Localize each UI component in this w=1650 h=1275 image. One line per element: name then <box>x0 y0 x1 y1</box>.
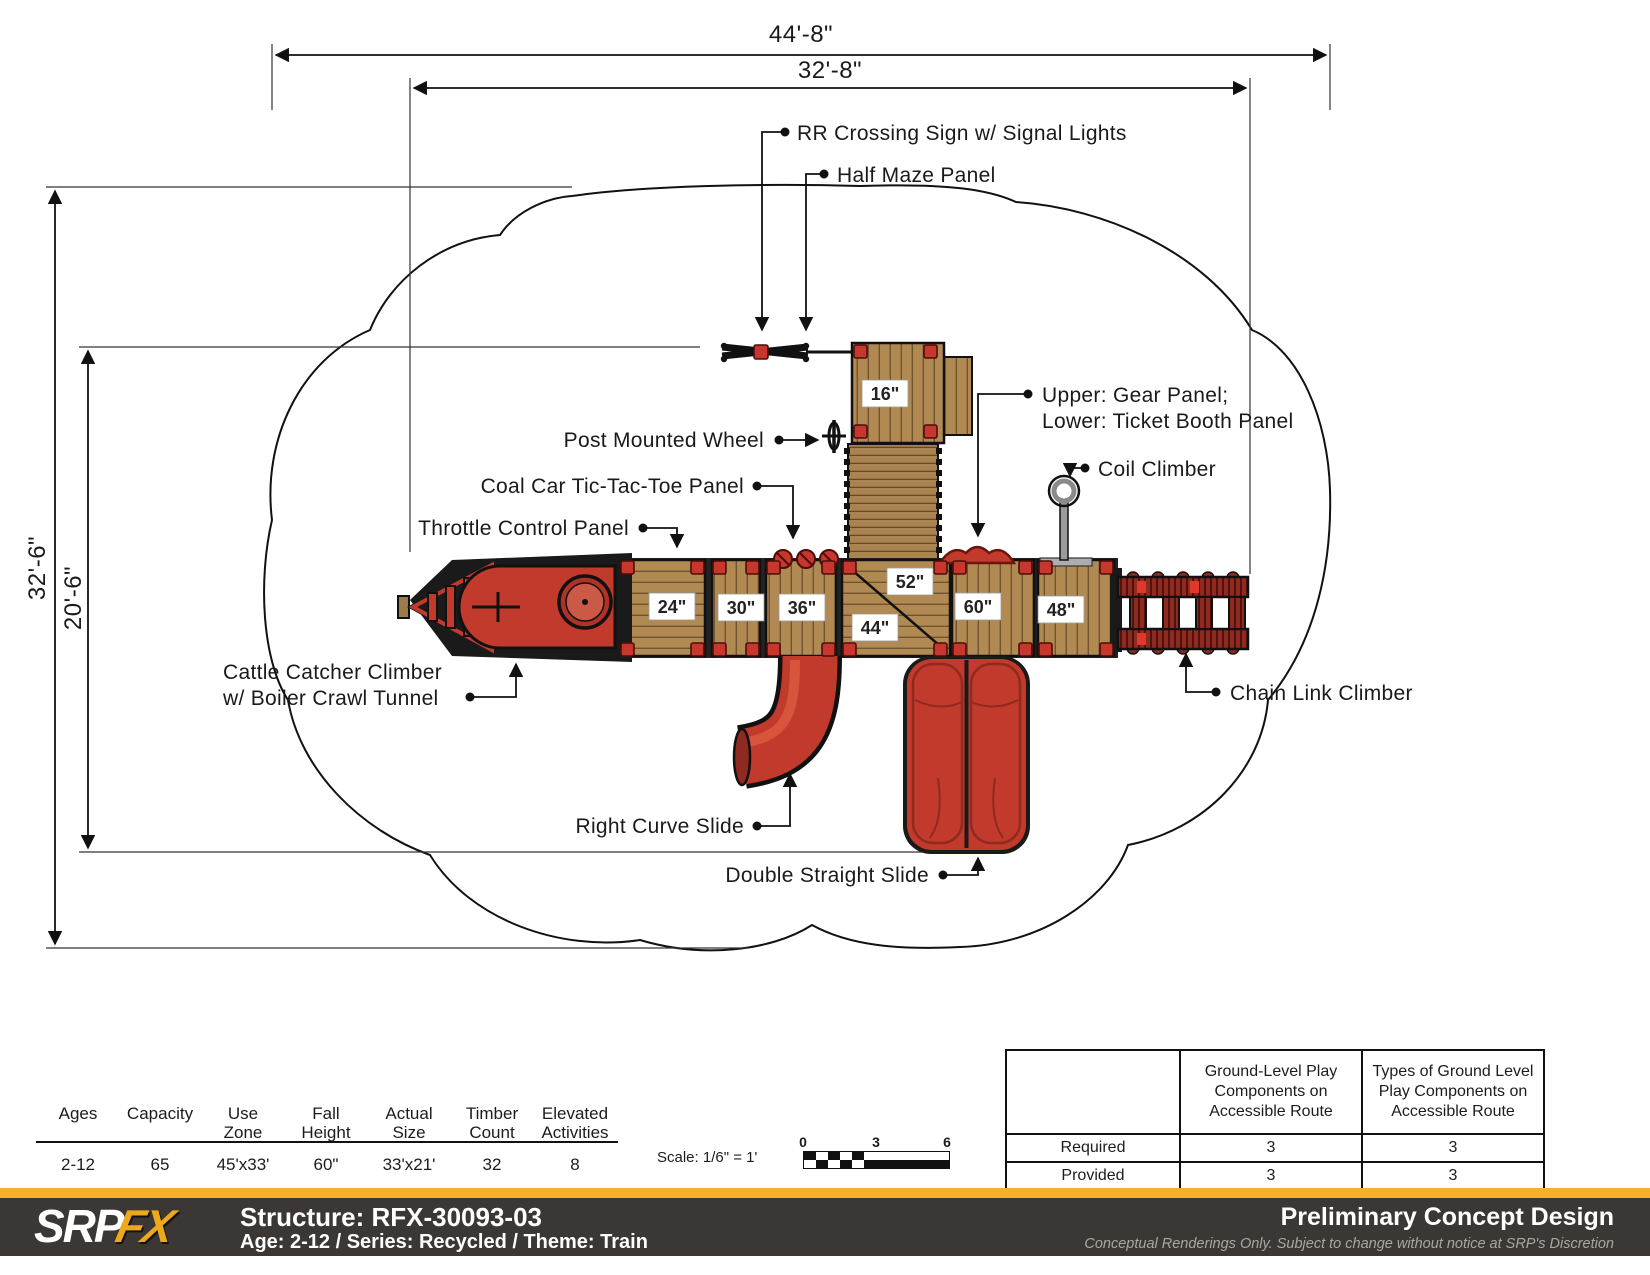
half-maze-panel <box>944 357 972 435</box>
deck-label-36: 36" <box>788 598 817 618</box>
acc-row-provided: Provided 3 3 <box>1006 1162 1544 1190</box>
label-curve-slide: Right Curve Slide <box>575 815 744 838</box>
deck-label-60: 60" <box>964 597 993 617</box>
deck-label-24: 24" <box>658 597 687 617</box>
deck-label-30: 30" <box>727 598 756 618</box>
scale-label: Scale: 1/6" = 1' <box>657 1149 757 1166</box>
dim-top-inner: 32'-8" <box>798 57 862 84</box>
acc-row-required: Required 3 3 <box>1006 1134 1544 1162</box>
accessibility-table: Ground-Level Play Components on Accessib… <box>1005 1049 1545 1191</box>
label-throttle: Throttle Control Panel <box>418 517 629 540</box>
srpfx-logo: SRPFX <box>34 1200 171 1252</box>
disclaimer: Conceptual Renderings Only. Subject to c… <box>1084 1236 1614 1252</box>
scale-bar <box>803 1151 950 1169</box>
deck-label-52: 52" <box>896 572 925 592</box>
dim-left-outer: 32'-6" <box>24 536 51 600</box>
structure-id: Structure: RFX-30093-03 <box>240 1202 542 1233</box>
acc-provided-label: Provided <box>1006 1162 1180 1190</box>
label-chain-link: Chain Link Climber <box>1230 682 1413 705</box>
acc-blank-cell <box>1006 1050 1180 1134</box>
stats-col-elevated: ElevatedActivities <box>525 1104 625 1142</box>
acc-col2-header: Ground-Level Play Components on Accessib… <box>1180 1050 1362 1134</box>
acc-required-c1: 3 <box>1180 1134 1362 1162</box>
label-coil-climber: Coil Climber <box>1098 458 1216 481</box>
label-rr-crossing: RR Crossing Sign w/ Signal Lights <box>797 122 1127 145</box>
label-cattle-2: w/ Boiler Crawl Tunnel <box>222 687 439 710</box>
scale-tick-3: 3 <box>872 1134 880 1150</box>
label-gear-lower: Lower: Ticket Booth Panel <box>1042 410 1293 433</box>
acc-provided-c1: 3 <box>1180 1162 1362 1190</box>
label-tictactoe: Coal Car Tic-Tac-Toe Panel <box>481 475 744 498</box>
double-straight-slide <box>903 656 1030 854</box>
label-double-slide: Double Straight Slide <box>725 864 929 887</box>
scale-tick-0: 0 <box>799 1134 807 1150</box>
stats-rule <box>36 1141 618 1143</box>
scale-tick-6: 6 <box>943 1134 951 1150</box>
playground-plan-diagram: 44'-8" 32'-8" 32'-6" 20'-6" <box>0 0 1650 1100</box>
deck-label-48: 48" <box>1047 600 1076 620</box>
bridge-ramp <box>847 444 939 564</box>
stats-value-elevated: 8 <box>525 1155 625 1175</box>
acc-col3-header: Types of Ground Level Play Components on… <box>1362 1050 1544 1134</box>
deck-label-44: 44" <box>861 618 890 638</box>
acc-required-label: Required <box>1006 1134 1180 1162</box>
label-cattle-1: Cattle Catcher Climber <box>223 661 442 684</box>
logo-fx-text: FX <box>111 1200 177 1252</box>
sheet-title: Preliminary Concept Design <box>1281 1203 1614 1232</box>
dim-top-outer: 44'-8" <box>769 21 833 48</box>
acc-required-c2: 3 <box>1362 1134 1544 1162</box>
label-gear-upper: Upper: Gear Panel; <box>1042 384 1228 407</box>
label-post-wheel: Post Mounted Wheel <box>564 429 764 452</box>
logo-srp-text: SRP <box>34 1200 123 1252</box>
deck-label-16: 16" <box>871 384 900 404</box>
dim-left-inner: 20'-6" <box>60 566 87 630</box>
label-half-maze: Half Maze Panel <box>837 164 996 187</box>
structure-meta: Age: 2-12 / Series: Recycled / Theme: Tr… <box>240 1231 648 1254</box>
accent-stripe <box>0 1188 1650 1198</box>
concept-design-sheet: 44'-8" 32'-8" 32'-6" 20'-6" <box>0 0 1650 1275</box>
acc-provided-c2: 3 <box>1362 1162 1544 1190</box>
